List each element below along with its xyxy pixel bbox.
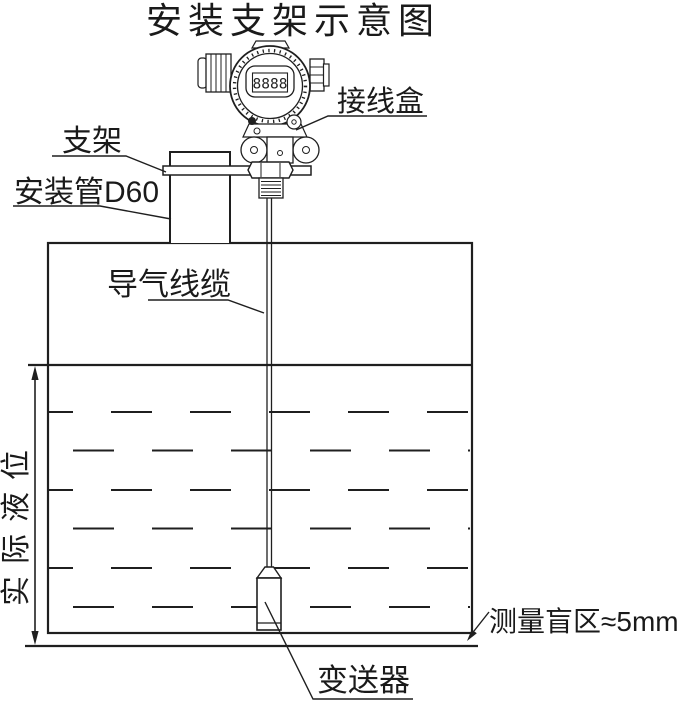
bolt-center: [292, 120, 296, 124]
hex-nut: [248, 162, 293, 178]
label-mounting-pipe: 安装管D60: [14, 176, 159, 209]
tank: [25, 243, 478, 646]
threaded-stem: [259, 178, 283, 198]
diagram-canvas: 8888: [0, 0, 700, 708]
probe-body: [257, 578, 281, 630]
label-actual-level: 实际液位: [0, 438, 33, 606]
small-screw: [254, 128, 260, 134]
arrow-down-icon: [31, 631, 38, 645]
leader-bracket: [52, 156, 166, 172]
label-transmitter: 变送器: [317, 663, 410, 698]
arrow-up-icon: [31, 366, 38, 380]
label-air-cable: 导气线缆: [107, 267, 231, 302]
installation-bracket-diagram: 8888: [0, 0, 700, 708]
label-blind-zone: 测量盲区≈5mm: [489, 606, 679, 637]
yoke: [241, 137, 319, 163]
probe: [257, 567, 281, 630]
label-junction-box: 接线盒: [337, 85, 424, 118]
bolt-dot: [248, 117, 256, 125]
blind-zone-arrow-line: [474, 612, 489, 631]
label-bracket: 支架: [62, 125, 122, 158]
side-connector: [310, 59, 329, 91]
lcd-digits: 8888: [253, 77, 288, 93]
leader-junction-box: [296, 116, 427, 130]
air-cable: [267, 198, 272, 572]
cable-gland: [198, 54, 231, 92]
page-title: 安装支架示意图: [146, 0, 440, 41]
blind-zone-arrowhead-icon: [467, 629, 477, 641]
